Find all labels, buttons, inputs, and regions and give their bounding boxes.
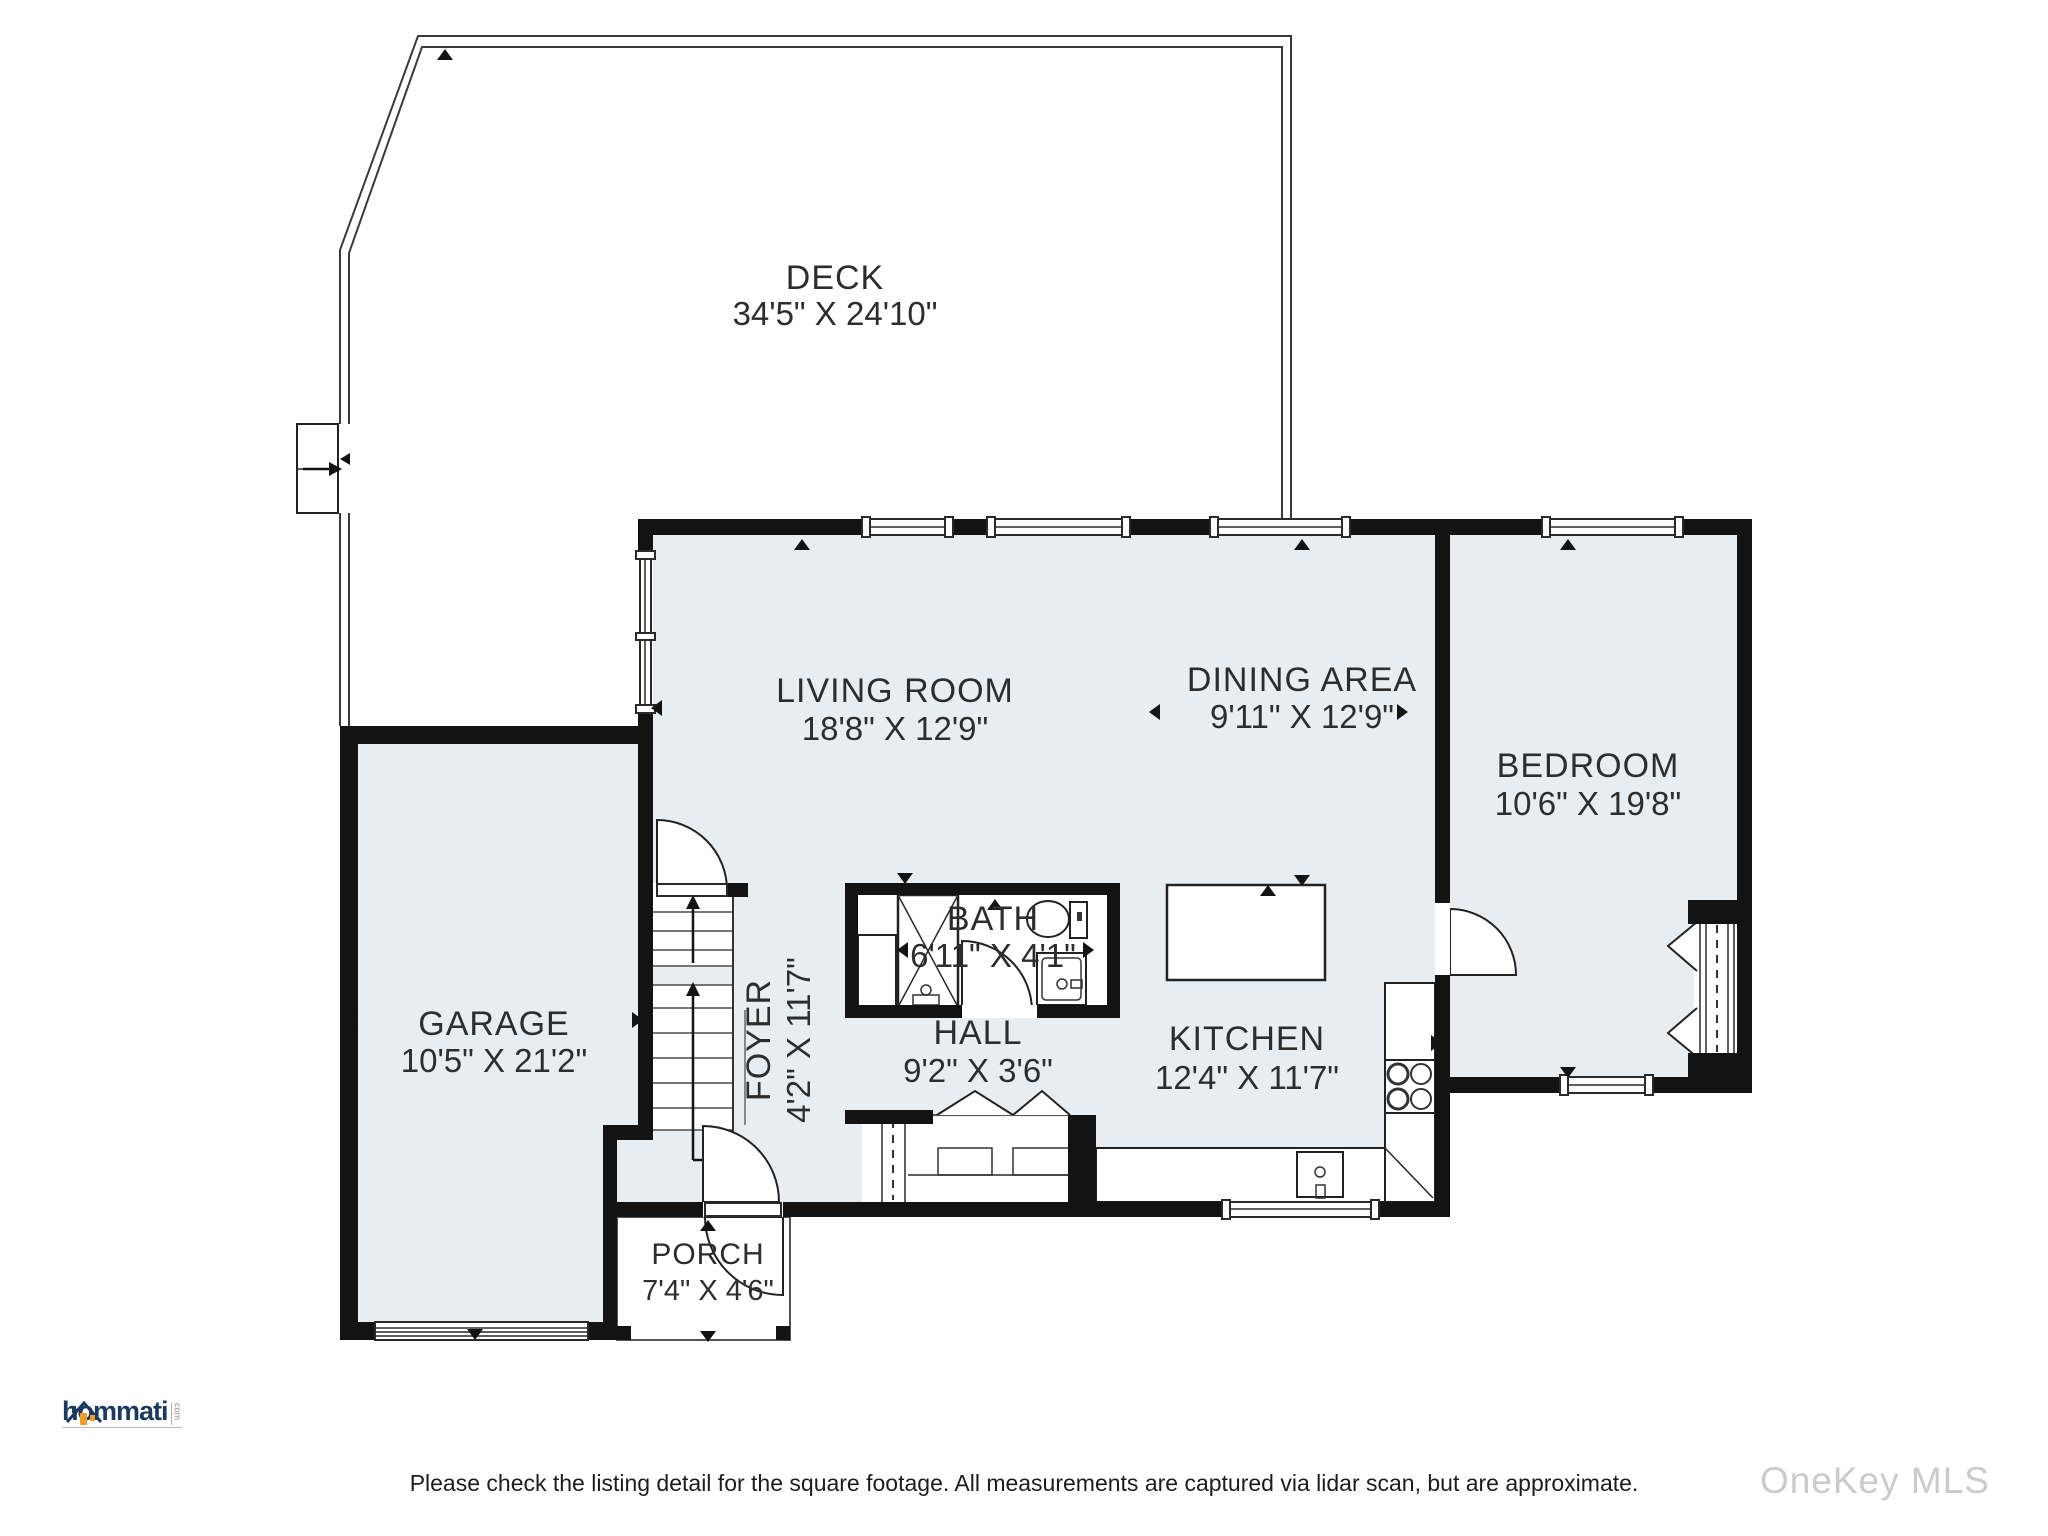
wall-garage-bottom-right (588, 1322, 617, 1340)
front-door-leaf (705, 1203, 781, 1216)
kitchen-dims: 12'4" X 11'7" (1155, 1059, 1339, 1096)
wall-bath-left (845, 883, 858, 1018)
wall-front-left (617, 1202, 703, 1217)
burner (1388, 1064, 1408, 1084)
hall-dims: 9'2" X 3'6" (903, 1052, 1053, 1089)
wall-corner-pillar (638, 519, 653, 553)
floor-plan-drawing: DECK 34'5" X 24'10" LIVING ROOM 18'8" X … (0, 0, 2048, 1536)
bedroom-dims: 10'6" X 19'8" (1495, 785, 1682, 822)
linen-closet (858, 935, 896, 1006)
foyer-dims: 4'2" X 11'7" (780, 957, 817, 1123)
measurement-disclaimer: Please check the listing detail for the … (0, 1470, 2048, 1497)
garage-label: GARAGE (418, 1005, 569, 1043)
deck-dims: 34'5" X 24'10" (733, 295, 938, 332)
bedroom-label: BEDROOM (1497, 747, 1680, 785)
deck-entry (297, 424, 350, 513)
onekey-mls-watermark: OneKey MLS (1760, 1460, 1990, 1502)
living-room-dims: 18'8" X 12'9" (802, 710, 989, 747)
bath-dims: 6'11" X 4'1" (910, 937, 1076, 974)
wall-hall-closet (845, 1110, 933, 1124)
wall-bedroom-right (1737, 519, 1752, 1088)
dining-area-dims: 9'11" X 12'9" (1210, 698, 1394, 735)
wall-garage-bottom-left (340, 1322, 375, 1340)
window (636, 551, 655, 713)
wall-jog (603, 1125, 653, 1140)
marker-up (437, 49, 453, 60)
window (1222, 1200, 1379, 1219)
wall-bedroom-bottom-right (1650, 1077, 1752, 1093)
wall-bath-right (1107, 883, 1120, 1018)
wall-front-right (1378, 1202, 1450, 1217)
foyer-label: FOYER (740, 979, 778, 1101)
toilet-handle (1077, 912, 1082, 921)
wall-garage-left (340, 726, 358, 1340)
window (1560, 1075, 1653, 1095)
porch-post-right (776, 1326, 790, 1340)
logo-suffix: com (171, 1403, 182, 1425)
foyer-entry-floor (617, 1140, 653, 1202)
wall-garage-top (340, 726, 653, 744)
window (1210, 517, 1350, 537)
dining-area-label: DINING AREA (1187, 661, 1417, 699)
wall-bath-top (845, 883, 1120, 895)
kitchen-label: KITCHEN (1169, 1020, 1325, 1058)
window (987, 517, 1130, 537)
window (862, 517, 953, 537)
wall-front-center (783, 1202, 1225, 1217)
burner (1411, 1089, 1431, 1109)
stair-door-leaf (657, 884, 727, 896)
staircase (653, 893, 745, 1167)
wall-garage-right-lower (603, 1140, 617, 1340)
wall-closet-pillar (1068, 1115, 1096, 1202)
porch-post-left (617, 1326, 631, 1340)
wall-divider-upper (1435, 519, 1450, 903)
house-icon (64, 1398, 104, 1432)
hommati-logo: hommati com (62, 1398, 192, 1428)
wall-bath-bottom-right (1037, 1005, 1120, 1018)
kitchen-island (1167, 885, 1325, 980)
wall-stair-door-stub (727, 883, 748, 897)
bedroom-door-opening (1435, 905, 1450, 975)
bath-label: BATH (947, 900, 1039, 938)
closet-wall-bottom (1688, 1053, 1737, 1077)
porch-dims: 7'4" X 4'6" (642, 1275, 774, 1307)
window (1542, 517, 1683, 537)
deck-label: DECK (786, 259, 884, 297)
stove (1385, 1060, 1435, 1113)
floor-plan-page: DECK 34'5" X 24'10" LIVING ROOM 18'8" X … (0, 0, 2048, 1536)
burner (1411, 1064, 1431, 1084)
hall-label: HALL (933, 1014, 1022, 1052)
living-room-label: LIVING ROOM (776, 672, 1014, 710)
kitchen-sink (1297, 1152, 1343, 1198)
deck-marker (340, 453, 350, 465)
burner (1388, 1089, 1408, 1109)
wall-garage-right-upper (638, 726, 653, 1125)
porch-label: PORCH (651, 1238, 764, 1271)
sink-basin (1297, 1152, 1343, 1197)
wall-bedroom-bottom-left (1437, 1077, 1563, 1093)
closet-floor (862, 1117, 1068, 1202)
garage-dims: 10'5" X 21'2" (401, 1042, 588, 1079)
closet-wall-top (1688, 900, 1737, 924)
